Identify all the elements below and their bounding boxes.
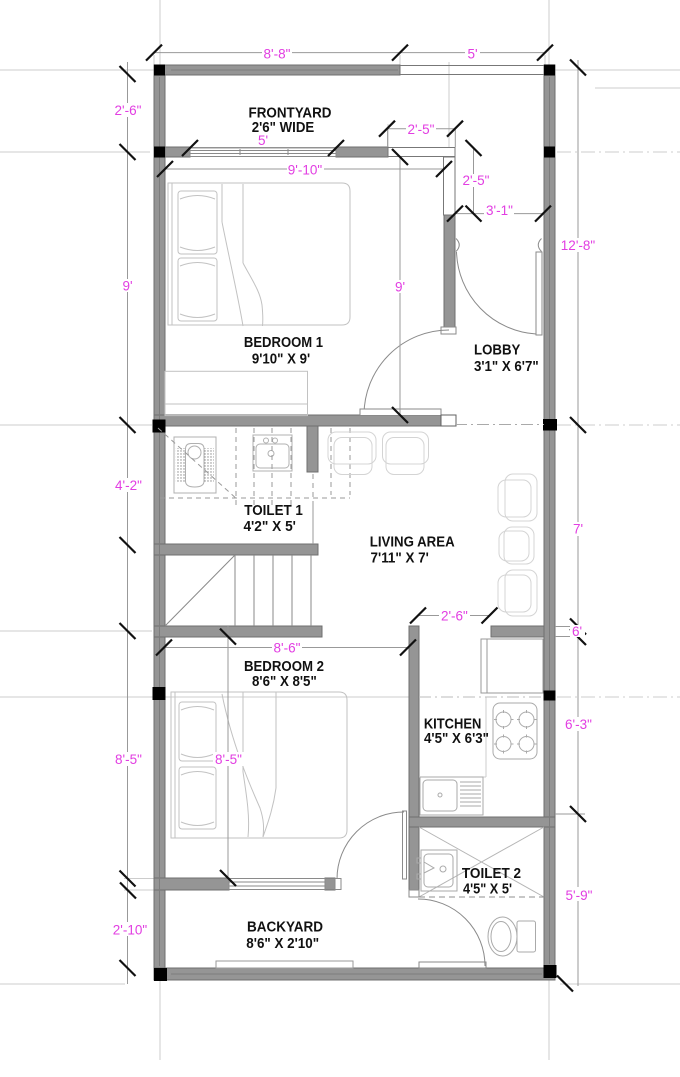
svg-text:3'-1": 3'-1" bbox=[486, 203, 513, 218]
svg-text:5'-9": 5'-9" bbox=[566, 888, 593, 903]
svg-text:5': 5' bbox=[467, 47, 477, 62]
svg-text:8'6" X 8'5": 8'6" X 8'5" bbox=[252, 674, 317, 690]
svg-text:LOBBY: LOBBY bbox=[474, 343, 521, 359]
svg-text:8'6" X 2'10": 8'6" X 2'10" bbox=[246, 936, 319, 952]
svg-text:8'-6": 8'-6" bbox=[274, 640, 301, 655]
svg-text:8'-8": 8'-8" bbox=[264, 47, 291, 62]
svg-text:BACKYARD: BACKYARD bbox=[247, 920, 323, 936]
svg-text:7'11" X 7': 7'11" X 7' bbox=[371, 551, 429, 567]
svg-text:FRONTYARD: FRONTYARD bbox=[249, 105, 332, 121]
svg-text:5': 5' bbox=[258, 133, 268, 148]
svg-text:4'5" X 6'3": 4'5" X 6'3" bbox=[424, 731, 489, 747]
svg-text:9': 9' bbox=[395, 280, 405, 295]
svg-text:TOILET 1: TOILET 1 bbox=[244, 503, 303, 519]
svg-text:8'-5": 8'-5" bbox=[115, 752, 142, 767]
svg-text:3'1" X 6'7": 3'1" X 6'7" bbox=[474, 359, 539, 375]
svg-text:2'-6": 2'-6" bbox=[441, 609, 468, 624]
svg-text:7': 7' bbox=[573, 522, 583, 537]
svg-text:6'-3": 6'-3" bbox=[565, 717, 592, 732]
svg-text:2'-5": 2'-5" bbox=[408, 122, 435, 137]
svg-text:9'10" X 9': 9'10" X 9' bbox=[252, 352, 310, 368]
svg-text:LIVING AREA: LIVING AREA bbox=[370, 535, 455, 551]
svg-text:9': 9' bbox=[122, 279, 132, 294]
svg-text:BEDROOM 1: BEDROOM 1 bbox=[244, 335, 323, 351]
svg-text:2'-6": 2'-6" bbox=[115, 103, 142, 118]
svg-text:4'-2": 4'-2" bbox=[115, 478, 142, 493]
svg-text:6': 6' bbox=[572, 624, 582, 639]
svg-text:TOILET 2: TOILET 2 bbox=[462, 866, 521, 882]
svg-text:2'-10": 2'-10" bbox=[113, 923, 148, 938]
svg-text:12'-8": 12'-8" bbox=[561, 238, 596, 253]
svg-text:BEDROOM 2: BEDROOM 2 bbox=[244, 659, 324, 675]
svg-text:4'5" X 5': 4'5" X 5' bbox=[463, 882, 512, 898]
svg-text:8'-5": 8'-5" bbox=[215, 752, 242, 767]
svg-text:9'-10": 9'-10" bbox=[288, 162, 323, 177]
svg-text:2'-5": 2'-5" bbox=[463, 173, 490, 188]
svg-text:4'2" X 5': 4'2" X 5' bbox=[243, 519, 296, 535]
svg-text:KITCHEN: KITCHEN bbox=[424, 716, 482, 732]
